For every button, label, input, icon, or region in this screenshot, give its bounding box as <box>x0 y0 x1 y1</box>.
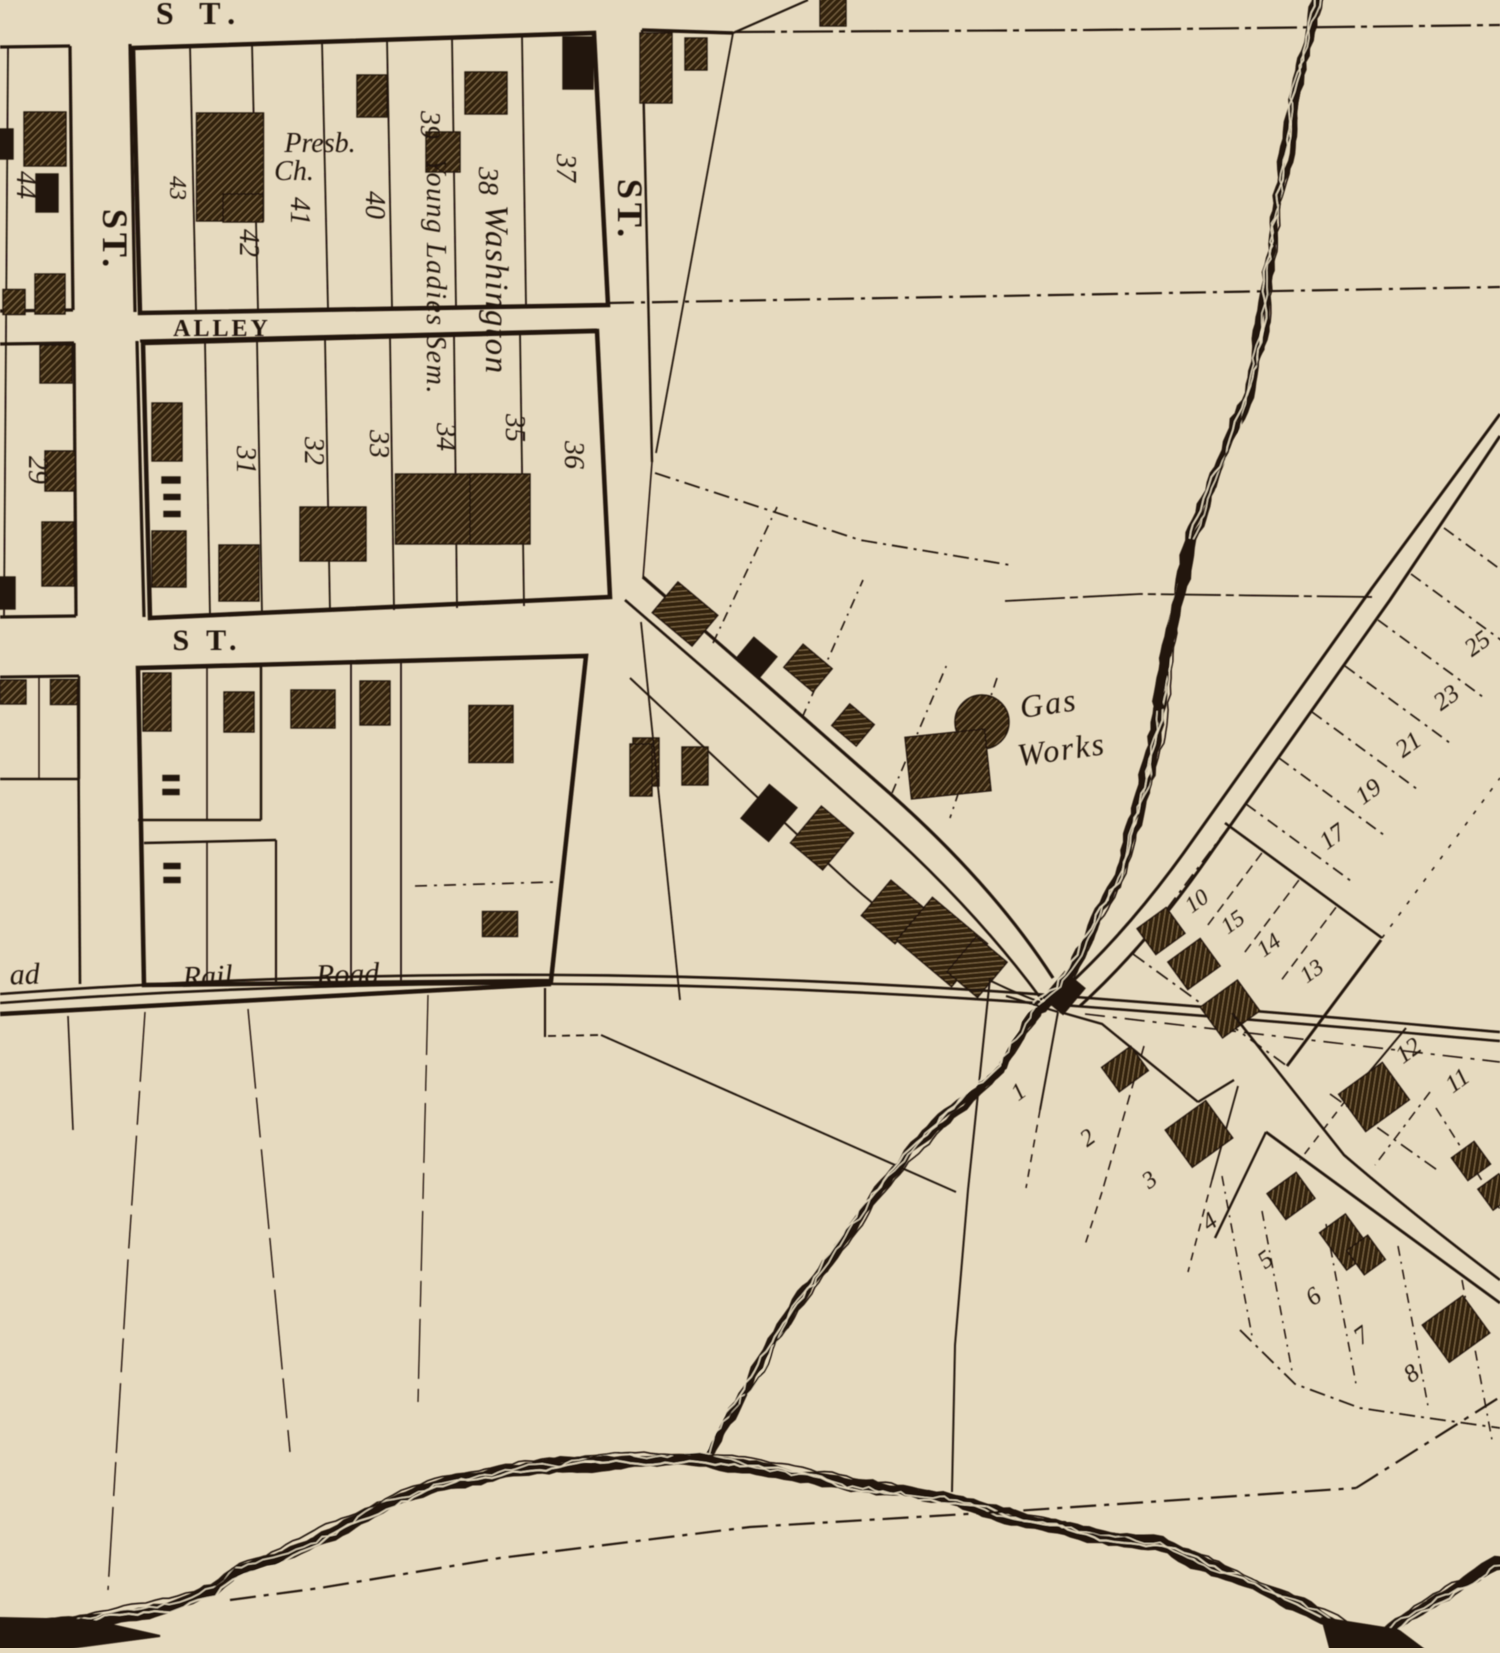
svg-text:ST.: ST. <box>95 209 135 271</box>
svg-text:ad: ad <box>9 957 41 991</box>
svg-text:39: 39 <box>414 110 445 139</box>
svg-text:36: 36 <box>558 440 589 469</box>
svg-text:31: 31 <box>230 445 261 474</box>
svg-text:42: 42 <box>233 229 264 257</box>
svg-text:Washington: Washington <box>478 205 514 375</box>
svg-text:34: 34 <box>430 422 461 451</box>
svg-text:Presb.: Presb. <box>283 128 355 159</box>
svg-text:29: 29 <box>22 456 53 484</box>
svg-text:Road: Road <box>314 957 380 992</box>
svg-text:43: 43 <box>164 176 190 200</box>
svg-text:41: 41 <box>284 197 315 225</box>
svg-text:38: 38 <box>472 166 503 195</box>
svg-text:S T.: S T. <box>156 0 244 31</box>
svg-text:Ch.: Ch. <box>274 156 314 187</box>
svg-text:37: 37 <box>550 153 581 183</box>
svg-text:40: 40 <box>359 191 390 219</box>
svg-text:33: 33 <box>363 429 394 458</box>
svg-text:32: 32 <box>298 436 329 465</box>
svg-text:ST.: ST. <box>610 179 650 241</box>
svg-text:S T.: S T. <box>173 624 242 657</box>
svg-text:Young Ladies Sem.: Young Ladies Sem. <box>420 158 451 395</box>
svg-text:35: 35 <box>499 413 530 442</box>
svg-text:44: 44 <box>10 171 41 199</box>
svg-text:Rail: Rail <box>181 959 233 994</box>
